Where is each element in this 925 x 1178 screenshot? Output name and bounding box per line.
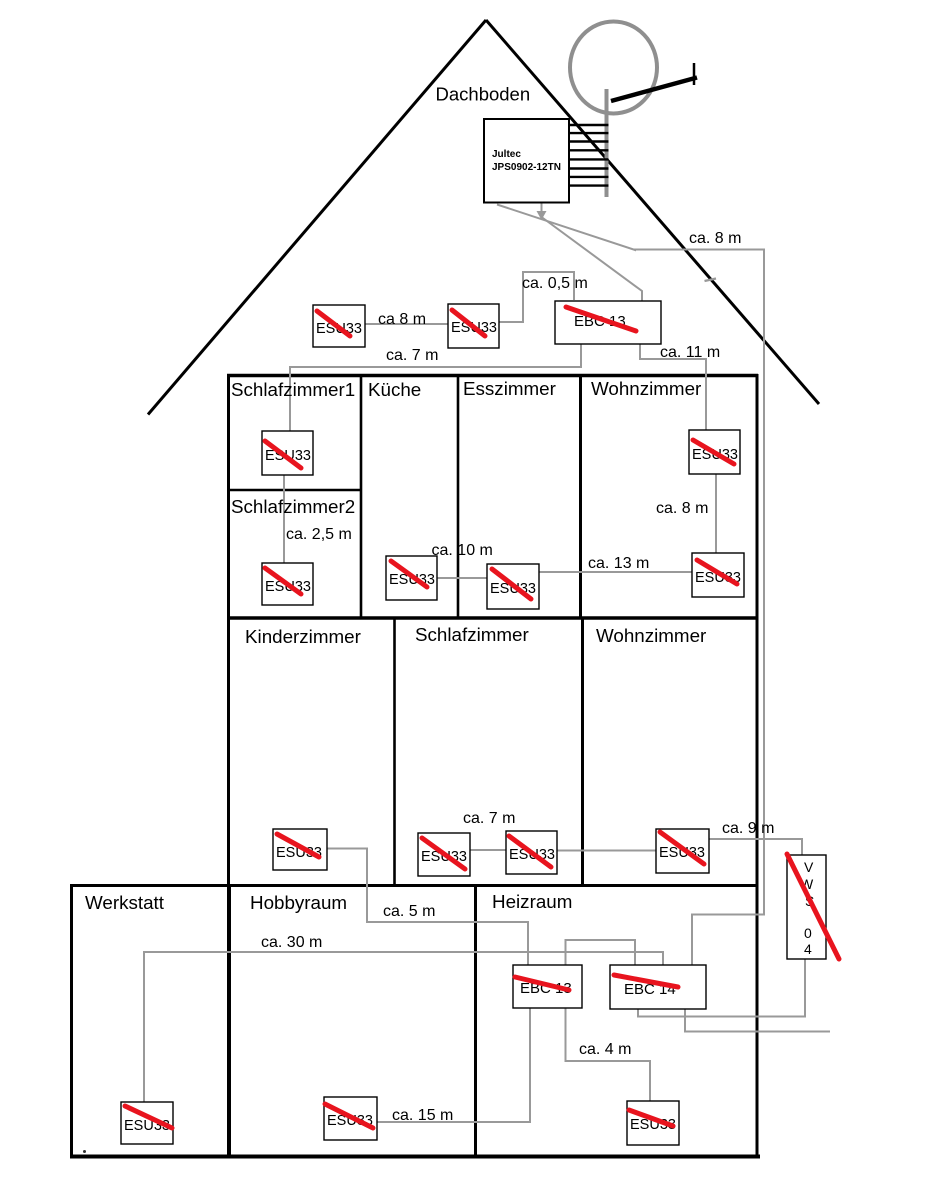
- svg-text:Heizraum: Heizraum: [492, 891, 572, 912]
- svg-text:Werkstatt: Werkstatt: [85, 892, 165, 913]
- svg-text:Hobbyraum: Hobbyraum: [250, 892, 347, 913]
- svg-text:ca. 15 m: ca. 15 m: [392, 1107, 453, 1124]
- svg-text:ca. 30 m: ca. 30 m: [261, 934, 322, 951]
- svg-text:ca. 5 m: ca. 5 m: [383, 903, 435, 920]
- svg-text:ca. 9 m: ca. 9 m: [722, 820, 774, 837]
- svg-text:Schlafzimmer: Schlafzimmer: [415, 624, 529, 645]
- svg-text:Schlafzimmer1: Schlafzimmer1: [231, 379, 355, 400]
- svg-text:4: 4: [804, 941, 812, 957]
- svg-text:ca. 8 m: ca. 8 m: [656, 500, 708, 517]
- svg-text:ca. 10 m: ca. 10 m: [432, 542, 493, 559]
- svg-text:Wohnzimmer: Wohnzimmer: [591, 378, 701, 399]
- svg-text:ca. 7 m: ca. 7 m: [386, 347, 438, 364]
- svg-text:ca 8 m: ca 8 m: [378, 311, 426, 328]
- svg-text:ca. 4 m: ca. 4 m: [579, 1041, 631, 1058]
- svg-text:Küche: Küche: [368, 379, 421, 400]
- svg-text:ca. 0,5 m: ca. 0,5 m: [522, 275, 588, 292]
- svg-text:ca. 8 m: ca. 8 m: [689, 230, 741, 247]
- svg-text:ca. 13 m: ca. 13 m: [588, 555, 649, 572]
- svg-text:0: 0: [804, 925, 812, 941]
- svg-text:Jultec: Jultec: [492, 149, 521, 160]
- svg-text:ca. 2,5 m: ca. 2,5 m: [286, 526, 352, 543]
- svg-text:Kinderzimmer: Kinderzimmer: [245, 626, 361, 647]
- svg-text:Esszimmer: Esszimmer: [463, 378, 556, 399]
- svg-text:ca. 7 m: ca. 7 m: [463, 810, 515, 827]
- svg-text:JPS0902-12TN: JPS0902-12TN: [492, 162, 561, 173]
- svg-text:Dachboden: Dachboden: [436, 84, 531, 105]
- svg-text:ca. 11 m: ca. 11 m: [660, 344, 720, 361]
- svg-text:Wohnzimmer: Wohnzimmer: [596, 625, 706, 646]
- svg-text:Schlafzimmer2: Schlafzimmer2: [231, 496, 355, 517]
- svg-text:V: V: [804, 859, 814, 875]
